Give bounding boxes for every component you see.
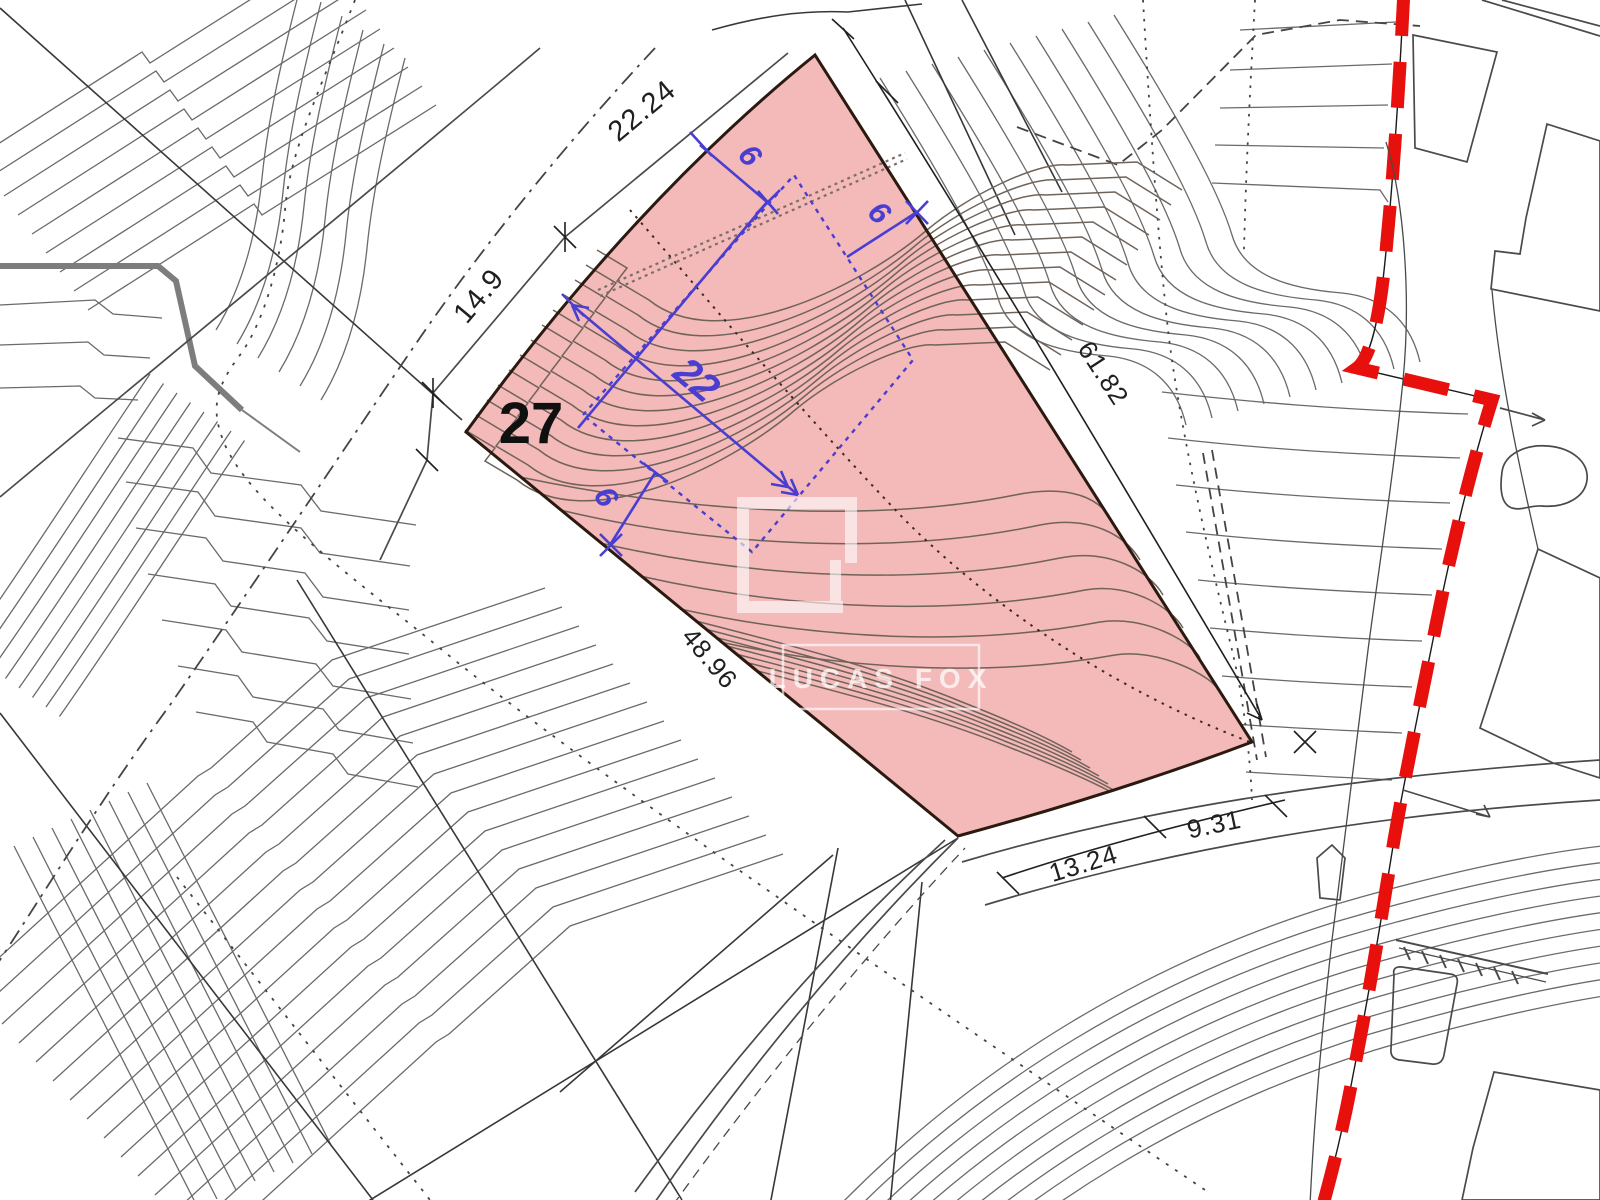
contour-lines-bottom-arcs [840, 846, 1600, 1200]
dimension-label-road-upper: 22.24 [602, 74, 682, 148]
site-plan-screenshot: LUCAS FOX 27 22.24 14.9 61.82 48.96 13.2… [0, 0, 1600, 1200]
plot-27-fill [466, 55, 1252, 836]
old-wall-line [0, 266, 300, 452]
retaining-wall-hatched [1396, 940, 1548, 984]
buildings-right [1310, 0, 1600, 1200]
dimension-label-bottom-second: 9.31 [1184, 804, 1244, 845]
dimension-label-bottom-first: 13.24 [1045, 839, 1121, 888]
dimension-label-road-lower: 14.9 [447, 263, 510, 330]
municipal-boundary [1323, 0, 1492, 1200]
contour-lines-bottom-left [0, 588, 783, 1200]
bottom-road [635, 760, 1600, 1200]
dimension-label-right-edge: 61.82 [1072, 336, 1135, 411]
contour-lines-top-left [0, 0, 436, 400]
plot-number-label: 27 [499, 391, 564, 456]
watermark-text: LUCAS FOX [769, 663, 994, 694]
site-plan-svg: LUCAS FOX 27 22.24 14.9 61.82 48.96 13.2… [0, 0, 1600, 1200]
